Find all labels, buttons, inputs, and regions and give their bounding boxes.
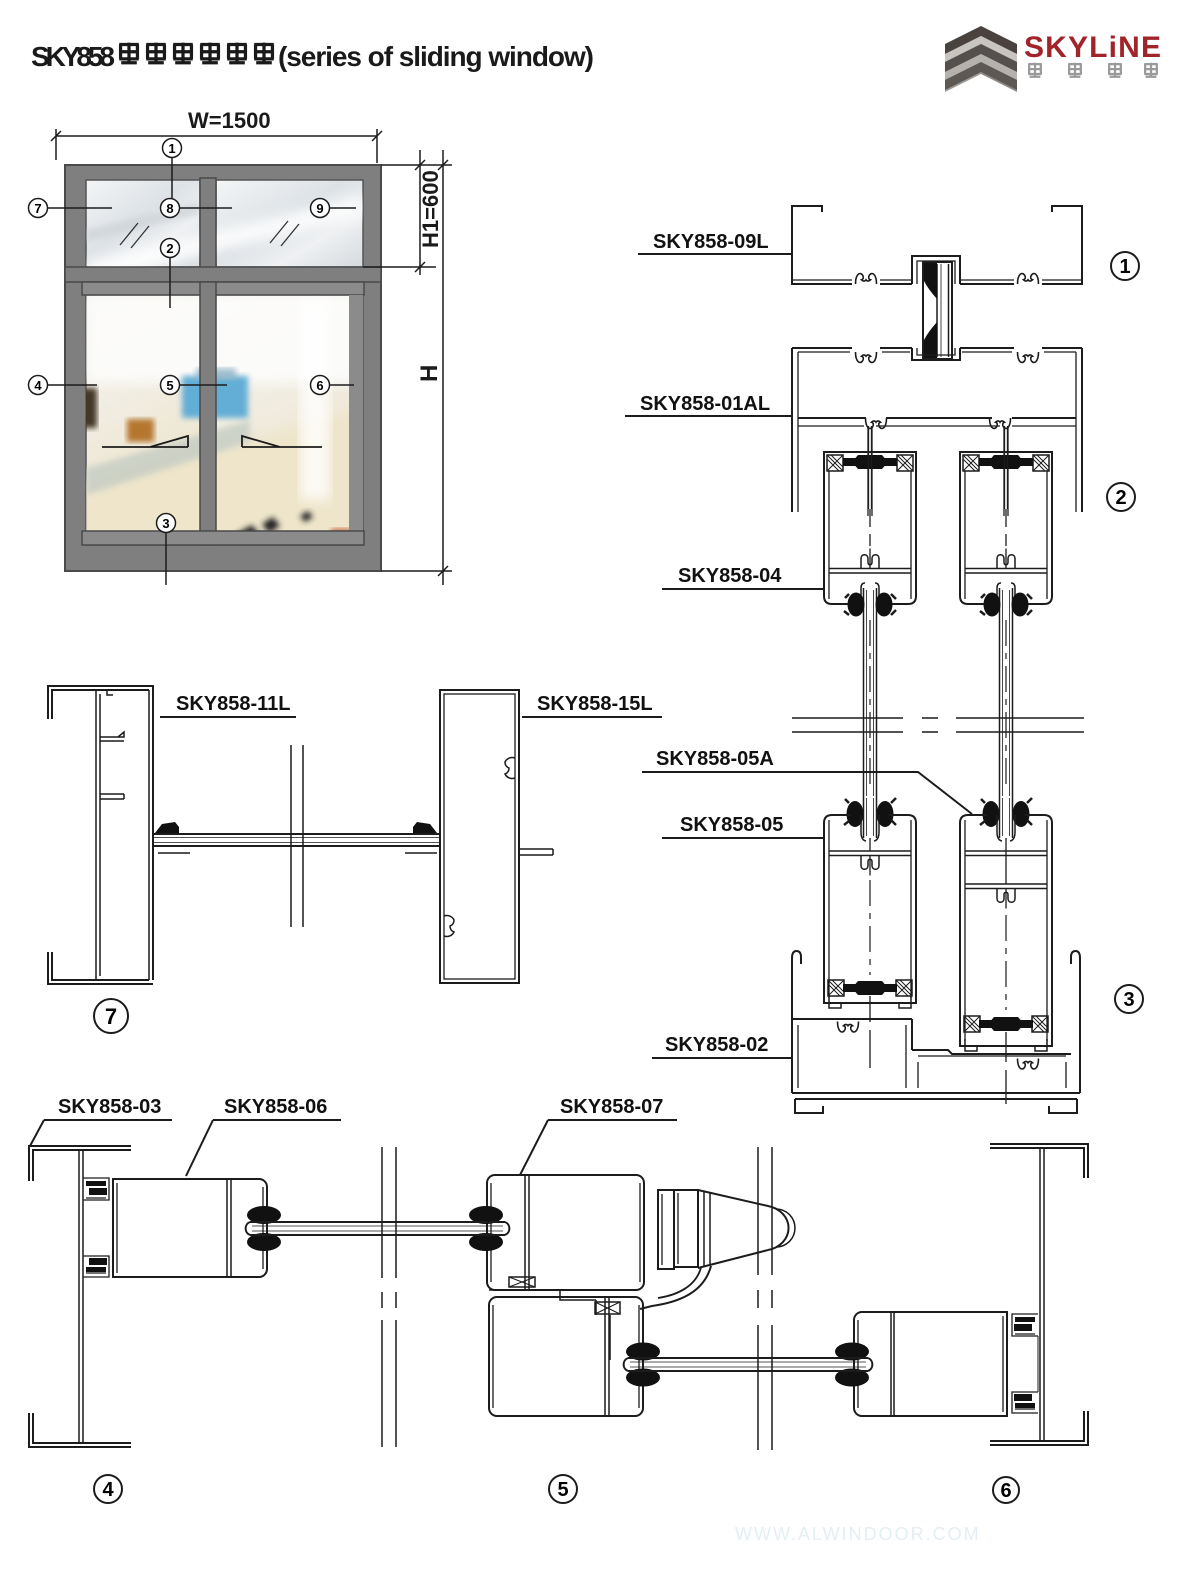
svg-text:1: 1 xyxy=(168,141,175,156)
svg-text:SKY858-01AL: SKY858-01AL xyxy=(640,393,770,415)
svg-text:5: 5 xyxy=(166,378,173,393)
svg-text:2: 2 xyxy=(166,241,173,256)
svg-text:H: H xyxy=(416,365,443,382)
svg-text:SKY858-09L: SKY858-09L xyxy=(653,231,769,253)
svg-text:SKY858: SKY858 xyxy=(31,41,115,72)
svg-text:H1=600: H1=600 xyxy=(418,170,443,248)
svg-text:W=1500: W=1500 xyxy=(188,108,271,133)
svg-text:2: 2 xyxy=(1115,487,1126,509)
svg-text:SKY858-05A: SKY858-05A xyxy=(656,748,774,770)
svg-text:SKY858-03: SKY858-03 xyxy=(58,1096,161,1118)
svg-text:4: 4 xyxy=(34,378,42,393)
svg-text:7: 7 xyxy=(105,1004,117,1029)
svg-text:WWW.ALWINDOOR.COM: WWW.ALWINDOOR.COM xyxy=(735,1524,981,1544)
svg-text:SKY858-02: SKY858-02 xyxy=(665,1034,768,1056)
svg-text:SKY858-05: SKY858-05 xyxy=(680,814,783,836)
svg-text:9: 9 xyxy=(316,201,323,216)
svg-text:SKY858-04: SKY858-04 xyxy=(678,565,782,587)
svg-text:8: 8 xyxy=(166,201,173,216)
svg-text:6: 6 xyxy=(1000,1480,1011,1502)
svg-text:1: 1 xyxy=(1119,256,1130,278)
svg-text:SKY858-15L: SKY858-15L xyxy=(537,693,653,715)
svg-text:3: 3 xyxy=(1123,989,1134,1011)
svg-text:4: 4 xyxy=(102,1479,114,1501)
svg-text:SKY858-11L: SKY858-11L xyxy=(176,693,291,715)
svg-text:6: 6 xyxy=(316,378,323,393)
svg-text:7: 7 xyxy=(34,201,41,216)
svg-text:3: 3 xyxy=(162,516,169,531)
svg-text:(series of sliding window): (series of sliding window) xyxy=(278,41,594,72)
svg-text:5: 5 xyxy=(557,1479,568,1501)
svg-text:SKYLiNE: SKYLiNE xyxy=(1024,31,1161,64)
svg-text:SKY858-07: SKY858-07 xyxy=(560,1096,663,1118)
svg-text:SKY858-06: SKY858-06 xyxy=(224,1096,327,1118)
